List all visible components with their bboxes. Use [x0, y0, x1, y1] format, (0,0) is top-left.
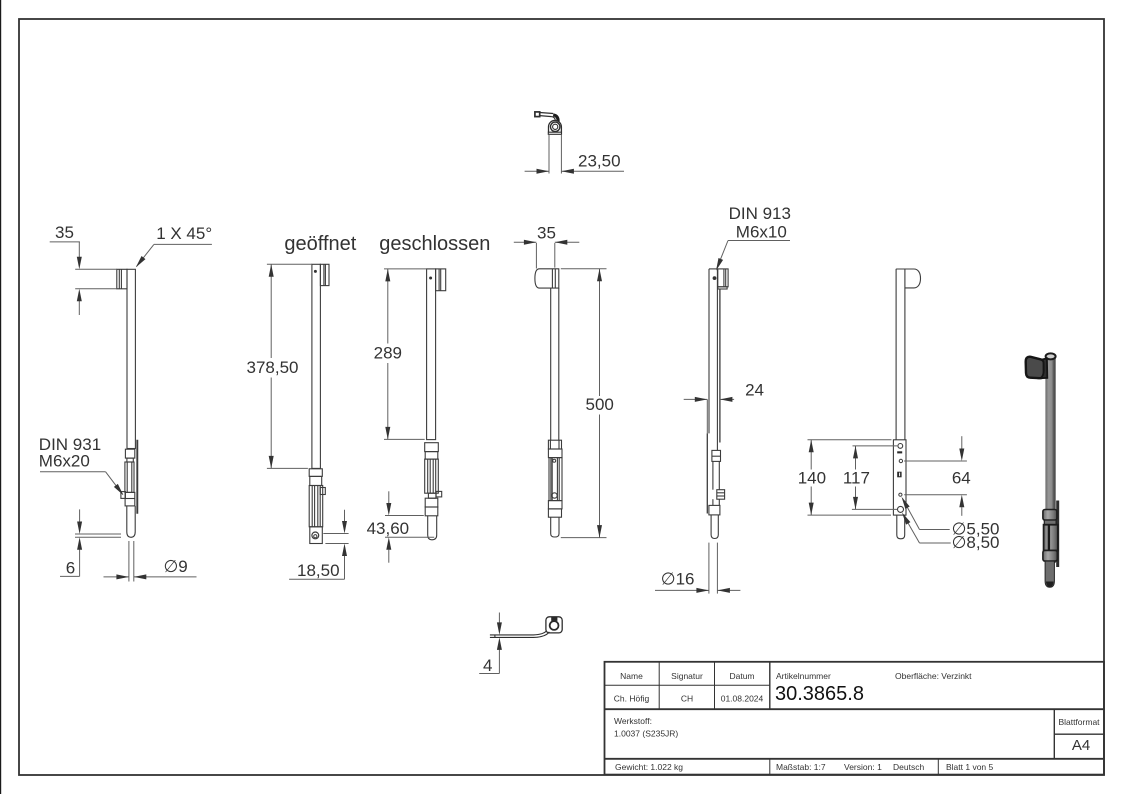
- svg-text:DIN 913: DIN 913: [729, 204, 791, 223]
- svg-text:Name: Name: [620, 671, 643, 681]
- svg-text:Ch. Höfig: Ch. Höfig: [614, 694, 650, 704]
- svg-text:289: 289: [374, 344, 402, 363]
- svg-text:Artikelnummer: Artikelnummer: [776, 671, 831, 681]
- svg-text:Werkstoff:: Werkstoff:: [614, 716, 652, 726]
- svg-text:∅8,50: ∅8,50: [952, 533, 1000, 552]
- svg-text:Oberfläche: Verzinkt: Oberfläche: Verzinkt: [895, 671, 972, 681]
- svg-text:378,50: 378,50: [247, 358, 299, 377]
- svg-text:30.3865.8: 30.3865.8: [775, 683, 864, 705]
- svg-text:Gewicht: 1.022 kg: Gewicht: 1.022 kg: [615, 762, 683, 772]
- svg-text:500: 500: [586, 395, 614, 414]
- svg-text:∅16: ∅16: [661, 570, 695, 589]
- svg-text:35: 35: [537, 224, 556, 243]
- svg-text:A4: A4: [1072, 737, 1090, 754]
- svg-text:Deutsch: Deutsch: [893, 762, 924, 772]
- svg-text:Maßstab: 1:7: Maßstab: 1:7: [776, 762, 826, 772]
- svg-text:23,50: 23,50: [578, 152, 621, 171]
- svg-text:Signatur: Signatur: [671, 671, 703, 681]
- svg-text:43,60: 43,60: [367, 519, 410, 538]
- svg-text:geschlossen: geschlossen: [379, 233, 490, 255]
- svg-text:24: 24: [745, 380, 764, 399]
- svg-text:01.08.2024: 01.08.2024: [721, 694, 764, 704]
- svg-text:117: 117: [843, 469, 870, 488]
- svg-text:6: 6: [66, 559, 75, 578]
- svg-text:18,50: 18,50: [297, 561, 340, 580]
- svg-text:64: 64: [952, 469, 971, 488]
- svg-text:Version: 1: Version: 1: [844, 762, 882, 772]
- svg-text:M6x20: M6x20: [39, 452, 90, 471]
- svg-text:Datum: Datum: [729, 671, 754, 681]
- svg-text:1.0037 (S235JR): 1.0037 (S235JR): [614, 729, 678, 739]
- svg-text:geöffnet: geöffnet: [284, 233, 356, 255]
- svg-text:Blatt 1 von 5: Blatt 1 von 5: [946, 762, 994, 772]
- svg-text:Blattformat: Blattformat: [1058, 717, 1100, 727]
- svg-text:CH: CH: [681, 694, 693, 704]
- svg-text:4: 4: [483, 656, 492, 675]
- svg-text:1 X 45°: 1 X 45°: [156, 224, 212, 243]
- svg-text:35: 35: [55, 223, 74, 242]
- svg-text:140: 140: [798, 469, 826, 488]
- svg-text:M6x10: M6x10: [736, 222, 787, 241]
- svg-text:∅9: ∅9: [164, 557, 188, 576]
